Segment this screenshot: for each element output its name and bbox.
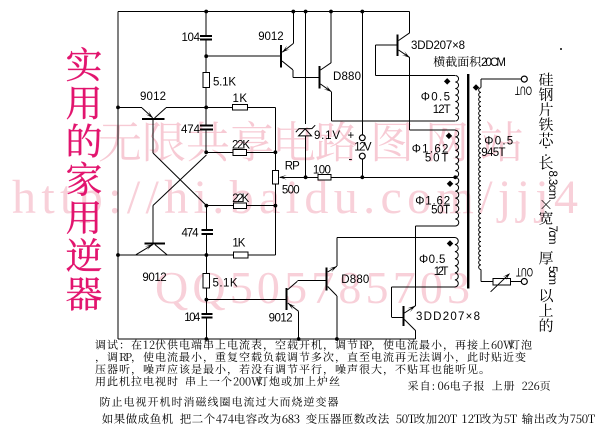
svg-text:9.1V: 9.1V [314, 130, 340, 142]
svg-text:Φ0.5: Φ0.5 [419, 254, 445, 266]
svg-text:474: 474 [181, 124, 201, 136]
svg-text:-: - [349, 154, 353, 166]
svg-text:474: 474 [182, 228, 200, 240]
svg-text:RP: RP [285, 161, 300, 173]
svg-text:20CM: 20CM [481, 57, 506, 69]
svg-text:22K: 22K [232, 193, 249, 205]
svg-text:945T: 945T [481, 147, 505, 159]
svg-text:1K: 1K [232, 238, 245, 250]
svg-text:Φ0.5: Φ0.5 [484, 135, 513, 147]
svg-text:8.3cm: 8.3cm [546, 171, 558, 200]
svg-text:12T: 12T [433, 104, 451, 116]
svg-text:5.1K: 5.1K [213, 76, 236, 88]
svg-text:5cm: 5cm [546, 266, 558, 285]
svg-text:50T: 50T [425, 152, 449, 164]
svg-text:12V: 12V [354, 142, 372, 154]
svg-text:D880: D880 [333, 71, 361, 83]
svg-text:500: 500 [282, 184, 300, 196]
svg-text:9012: 9012 [258, 31, 283, 43]
svg-text:9012: 9012 [140, 91, 166, 103]
svg-text:104: 104 [182, 32, 201, 44]
svg-text:50T: 50T [431, 205, 450, 217]
svg-text:+: + [348, 130, 355, 142]
svg-text:Φ0.5: Φ0.5 [421, 92, 450, 104]
svg-text:22K: 22K [232, 140, 250, 152]
svg-text:1K: 1K [233, 93, 248, 105]
svg-text:5.1K: 5.1K [213, 277, 238, 289]
svg-text:3DD207×8: 3DD207×8 [411, 40, 465, 52]
svg-text:7cm: 7cm [546, 226, 558, 245]
svg-text:100: 100 [313, 164, 331, 176]
svg-text:3DD207×8: 3DD207×8 [416, 311, 480, 323]
svg-text:12T: 12T [434, 266, 449, 278]
svg-text:9012: 9012 [142, 272, 166, 284]
svg-text:104: 104 [184, 312, 201, 324]
svg-text:D880: D880 [341, 274, 369, 286]
svg-text:OUT: OUT [515, 83, 532, 95]
svg-text:OUT: OUT [516, 265, 533, 277]
svg-text:9012: 9012 [269, 313, 293, 325]
